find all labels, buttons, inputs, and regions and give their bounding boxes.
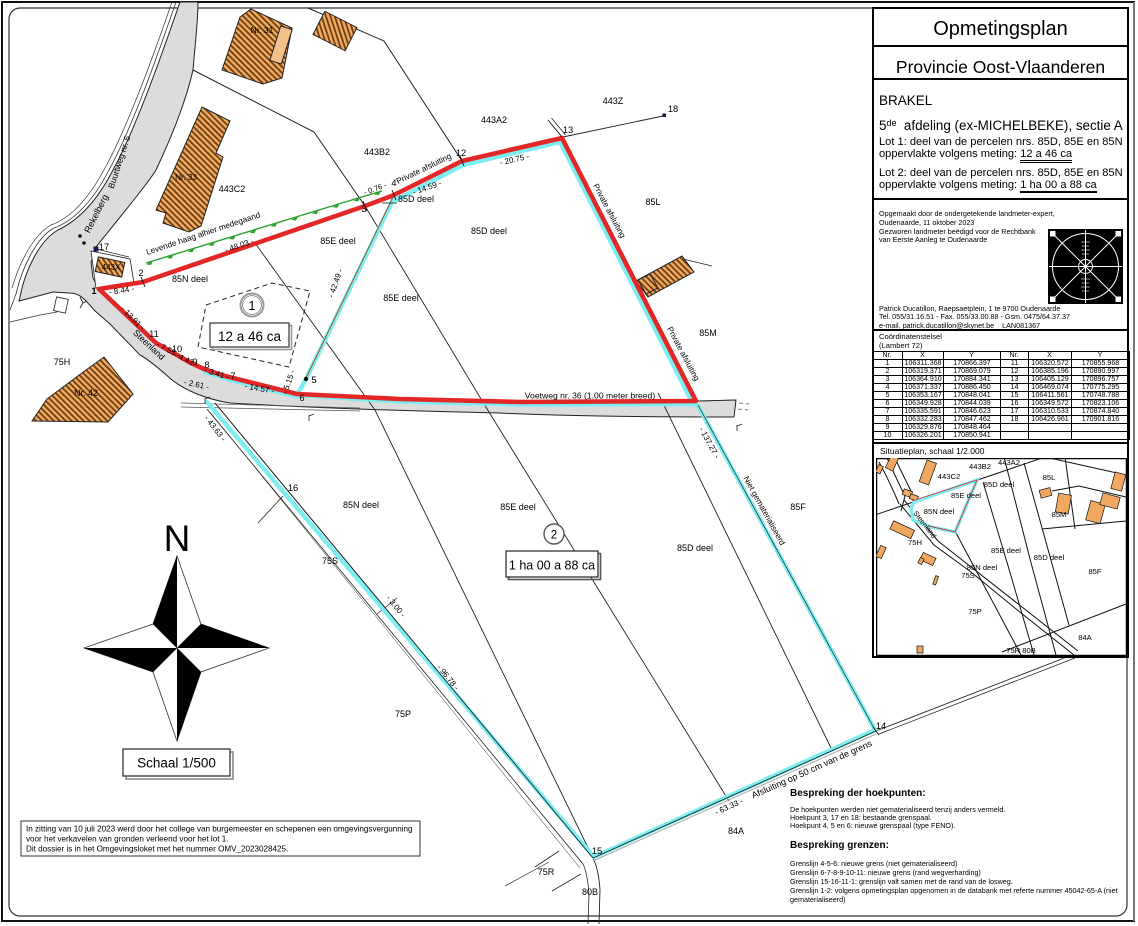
svg-text:9: 9 [192,357,197,367]
svg-text:85F: 85F [1088,567,1101,576]
svg-text:443C2: 443C2 [938,472,960,481]
svg-text:1: 1 [91,286,96,296]
svg-text:80B: 80B [582,887,598,897]
svg-text:85D deel: 85D deel [677,543,713,553]
svg-text:2: 2 [551,530,557,542]
svg-text:85E deel: 85E deel [951,491,981,500]
svg-text:11: 11 [149,329,159,339]
svg-text:75H: 75H [54,357,71,367]
svg-text:85E deel: 85E deel [500,502,536,512]
svg-text:12: 12 [456,148,466,158]
svg-text:Nr. 33: Nr. 33 [175,173,197,182]
svg-text:16: 16 [288,483,298,493]
svg-text:2: 2 [138,268,143,278]
svg-text:Dit dossier is in het Omgeving: Dit dossier is in het Omgevingsloket met… [26,845,288,854]
svg-text:443B2: 443B2 [364,147,390,157]
svg-text:In zitting van 10 juli 2023 we: In zitting van 10 juli 2023 werd door he… [26,825,413,834]
svg-text:6: 6 [299,393,304,403]
svg-text:15: 15 [592,846,602,856]
svg-text:1 ha 00 a 88 ca: 1 ha 00 a 88 ca [509,559,595,573]
svg-text:Nr. 31: Nr. 31 [251,25,274,35]
svg-text:85N deel: 85N deel [924,507,955,516]
svg-text:75R: 75R [538,867,555,877]
svg-text:4: 4 [391,178,396,188]
svg-text:85N deel: 85N deel [172,274,208,284]
svg-text:85E deel: 85E deel [991,546,1021,555]
svg-text:3: 3 [361,204,366,214]
svg-text:5: 5 [311,375,316,385]
svg-text:75P: 75P [395,709,411,719]
svg-text:13: 13 [563,125,573,135]
svg-text:N: N [164,518,191,559]
svg-text:85E deel: 85E deel [383,293,419,303]
svg-text:443A2: 443A2 [481,115,507,125]
svg-text:Nr. 42: Nr. 42 [74,388,98,398]
svg-text:75R 80B: 75R 80B [1006,646,1036,655]
svg-text:75S: 75S [322,556,338,566]
svg-text:14: 14 [876,721,886,731]
svg-text:- 42.49 -: - 42.49 - [327,267,345,298]
svg-text:75P: 75P [968,607,982,616]
svg-text:85E deel: 85E deel [320,236,356,246]
svg-text:85D deel: 85D deel [1034,553,1065,562]
svg-text:voor het verkavelen van gronde: voor het verkavelen van gronden verleend… [26,835,228,844]
svg-text:85D deel: 85D deel [984,480,1015,489]
svg-text:1: 1 [249,299,256,313]
svg-text:443X: 443X [102,263,121,272]
svg-text:85M: 85M [1052,510,1067,519]
svg-text:Voetweg nr. 36 (1.00 meter bre: Voetweg nr. 36 (1.00 meter breed) [525,391,656,401]
svg-text:85M: 85M [699,328,717,338]
svg-text:Schaal 1/500: Schaal 1/500 [137,756,216,771]
svg-text:84A: 84A [728,826,744,836]
svg-text:443A2: 443A2 [998,458,1020,467]
svg-text:75H: 75H [908,538,922,547]
svg-text:18: 18 [668,104,678,114]
svg-text:85N deel: 85N deel [343,500,379,510]
svg-text:Niet gematerialiseerd: Niet gematerialiseerd [741,475,787,547]
svg-text:75S: 75S [961,571,975,580]
svg-text:- 48.03 -: - 48.03 - [224,237,255,255]
svg-text:10: 10 [172,344,182,354]
svg-text:443C2: 443C2 [219,184,246,194]
svg-text:85F: 85F [790,502,806,512]
svg-text:85L: 85L [1043,473,1056,482]
svg-text:85D deel: 85D deel [471,226,507,236]
svg-text:443B2: 443B2 [969,462,991,471]
svg-text:7: 7 [230,371,235,381]
svg-text:17: 17 [99,242,109,252]
svg-text:12 a 46 ca: 12 a 46 ca [218,329,282,344]
svg-text:84A: 84A [1078,633,1092,642]
svg-text:8: 8 [204,360,209,370]
svg-text:443Z: 443Z [603,96,624,106]
svg-text:85L: 85L [645,197,660,207]
